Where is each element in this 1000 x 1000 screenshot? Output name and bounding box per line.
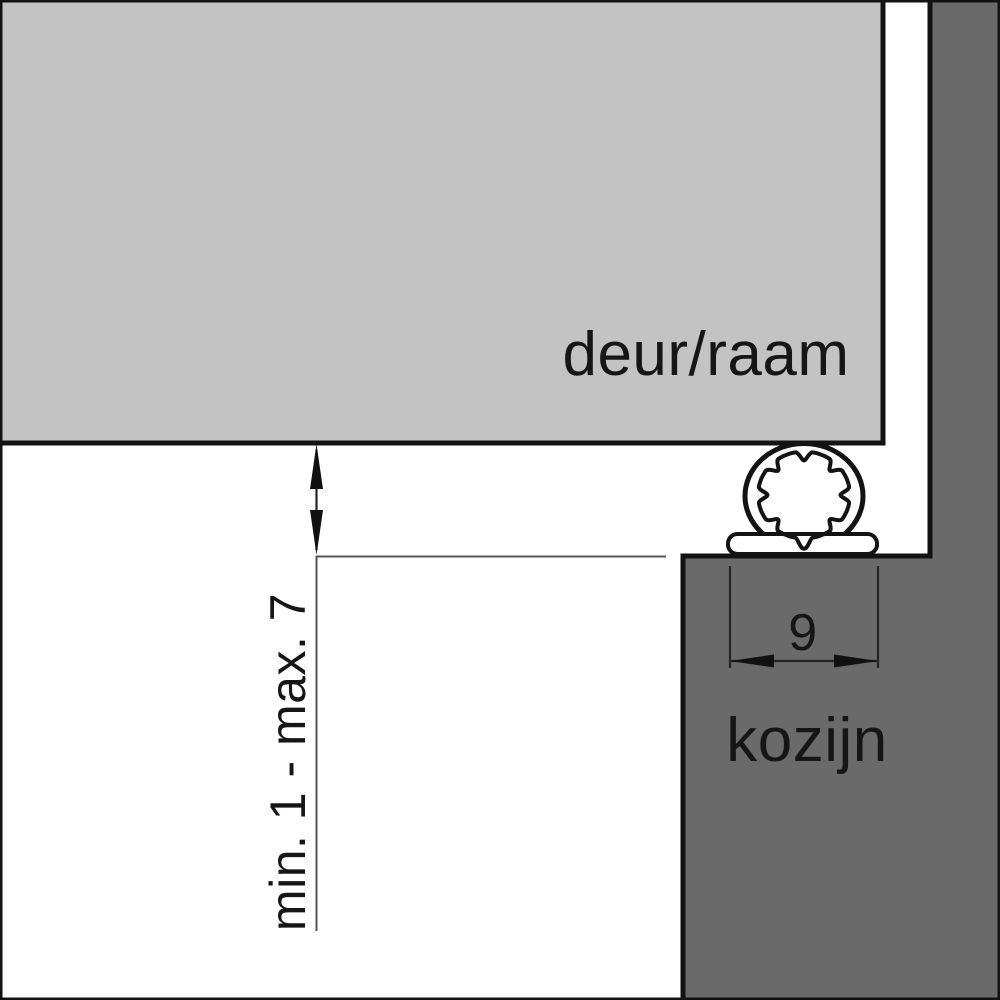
seal-width-dimension-label: 9 [788, 607, 817, 659]
gap-dimension-label: min. 1 - max. 7 [263, 593, 313, 931]
frame-label: kozijn [726, 710, 888, 772]
seal-cross-section-drawing [0, 0, 1000, 1000]
door-label: deur/raam [562, 324, 849, 386]
seal-base-strip [728, 534, 877, 554]
diagram-canvas: deur/raam kozijn 9 min. 1 - max. 7 [0, 0, 1000, 1000]
